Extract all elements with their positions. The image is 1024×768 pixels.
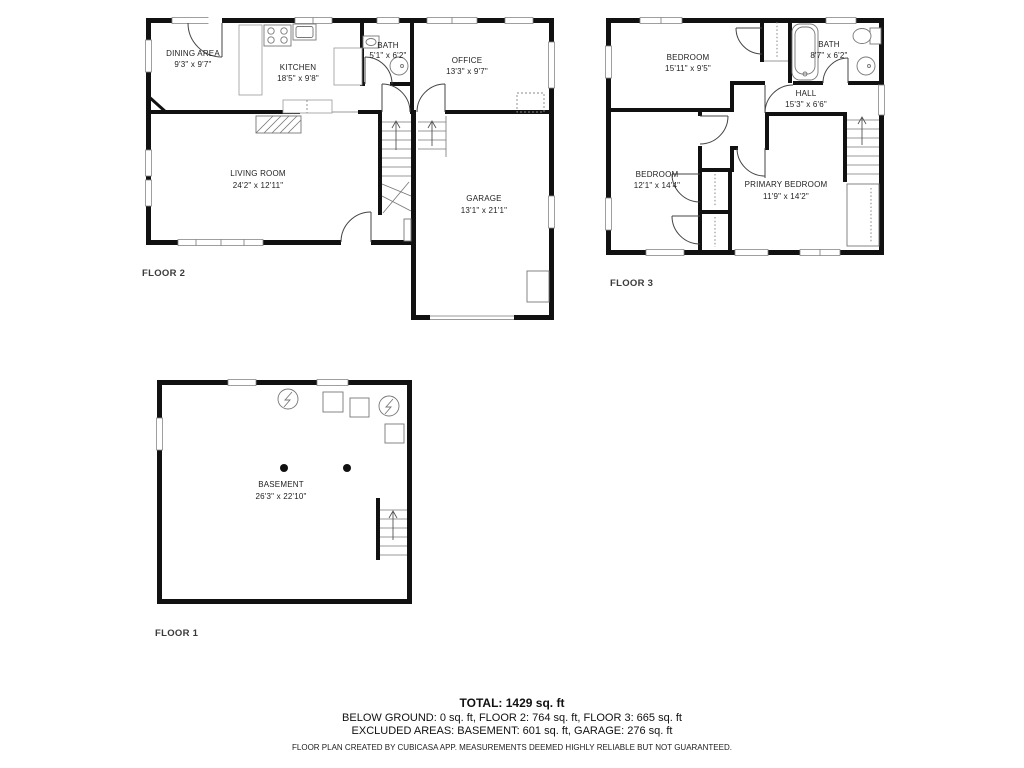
room-label-bath2: BATH bbox=[377, 41, 399, 50]
room-label-kitchen: KITCHEN bbox=[280, 63, 317, 72]
excluded-areas-text: EXCLUDED AREAS: BASEMENT: 601 sq. ft, GA… bbox=[352, 725, 673, 737]
room-label-hall: HALL bbox=[796, 89, 817, 98]
room-label-basement: BASEMENT bbox=[258, 480, 304, 489]
appliance-box-2 bbox=[350, 398, 369, 417]
room-label-garage: GARAGE bbox=[466, 194, 501, 203]
column-dot-1 bbox=[280, 464, 288, 472]
garage-fixture bbox=[527, 271, 549, 302]
appliance-box-1 bbox=[323, 392, 343, 412]
bath3-sink-icon bbox=[857, 57, 875, 75]
room-dims-dining: 9'3" x 9'7" bbox=[174, 60, 211, 69]
floor3-label: FLOOR 3 bbox=[610, 278, 653, 289]
room-dims-hall: 15'3" x 6'6" bbox=[785, 100, 827, 109]
room-label-office: OFFICE bbox=[452, 56, 483, 65]
room-label-dining: DINING AREA bbox=[166, 49, 220, 58]
room-label-living: LIVING ROOM bbox=[230, 169, 286, 178]
room-dims-primary: 11'9" x 14'2" bbox=[763, 192, 809, 201]
room-label-bedroom1: BEDROOM bbox=[667, 53, 710, 62]
floor-plan-drawing: DINING AREA 9'3" x 9'7" KITCHEN 18'5" x … bbox=[0, 0, 1024, 768]
room-dims-kitchen: 18'5" x 9'8" bbox=[277, 74, 319, 83]
area-summary: TOTAL: 1429 sq. ft BELOW GROUND: 0 sq. f… bbox=[292, 696, 732, 752]
toilet-icon bbox=[853, 28, 881, 44]
hatch-area bbox=[256, 116, 301, 133]
garage-door-symbol bbox=[430, 316, 514, 320]
stove-icon bbox=[264, 25, 291, 46]
stairs-floor1 bbox=[376, 498, 407, 560]
stairs-garage-floor2 bbox=[418, 116, 446, 157]
water-heater-icon-2 bbox=[379, 396, 399, 416]
floor-areas-text: BELOW GROUND: 0 sq. ft, FLOOR 2: 764 sq.… bbox=[342, 712, 682, 724]
room-label-bedroom2: BEDROOM bbox=[636, 170, 679, 179]
appliance-box-3 bbox=[385, 424, 404, 443]
room-label-bath3: BATH bbox=[818, 40, 840, 49]
floor1-label: FLOOR 1 bbox=[155, 628, 199, 639]
column-dot-2 bbox=[343, 464, 351, 472]
stairs-floor3 bbox=[847, 117, 879, 174]
floor1-plan: BASEMENT 26'3" x 22'10" FLOOR 1 bbox=[155, 380, 412, 640]
kitchen-sink-icon bbox=[293, 24, 316, 40]
room-dims-living: 24'2" x 12'11" bbox=[233, 181, 284, 190]
disclaimer-text: FLOOR PLAN CREATED BY CUBICASA APP. MEAS… bbox=[292, 743, 732, 752]
room-dims-bedroom2: 12'1" x 14'4" bbox=[634, 181, 680, 190]
floor-plan-page: DINING AREA 9'3" x 9'7" KITCHEN 18'5" x … bbox=[0, 0, 1024, 768]
water-heater-icon bbox=[278, 389, 298, 409]
floor3-plan: BEDROOM 15'11" x 9'5" BATH 8'7" x 6'2" H… bbox=[606, 18, 885, 290]
window-symbols-floor1 bbox=[157, 380, 349, 451]
room-dims-bath3: 8'7" x 6'2" bbox=[810, 51, 847, 60]
total-area-text: TOTAL: 1429 sq. ft bbox=[460, 696, 565, 710]
room-dims-bedroom1: 15'11" x 9'5" bbox=[665, 64, 711, 73]
room-label-primary: PRIMARY BEDROOM bbox=[745, 180, 828, 189]
floor2-plan: DINING AREA 9'3" x 9'7" KITCHEN 18'5" x … bbox=[142, 18, 555, 321]
room-dims-office: 13'3" x 9'7" bbox=[446, 67, 488, 76]
stairs-floor2 bbox=[382, 121, 411, 213]
room-dims-bath2: 5'1" x 6'2" bbox=[369, 51, 406, 60]
room-dims-garage: 13'1" x 21'1" bbox=[461, 206, 507, 215]
room-dims-basement: 26'3" x 22'10" bbox=[255, 492, 306, 501]
office-closet-symbol bbox=[517, 93, 544, 112]
floor2-label: FLOOR 2 bbox=[142, 268, 185, 279]
